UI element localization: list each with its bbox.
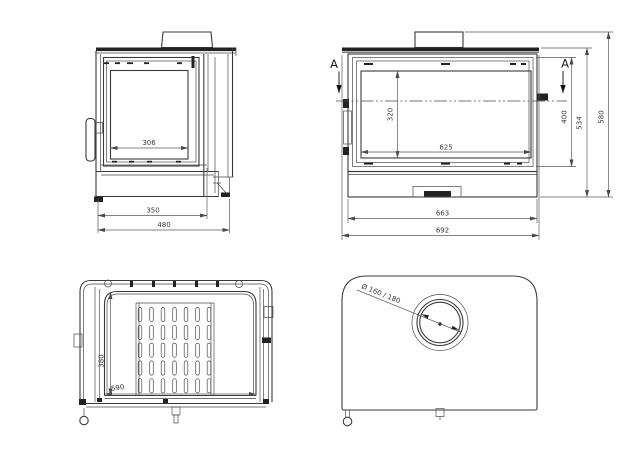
flue-diameter-dimension: Ø 160 / 180 (357, 282, 461, 332)
dim-front-glass-height: 320 (387, 108, 395, 121)
dim-front-overall-height: 580 (598, 110, 606, 123)
door-knob-section (80, 416, 88, 424)
section-view: 380 590 (74, 280, 273, 425)
section-dimensions: 380 590 (98, 292, 257, 396)
door-front-section (79, 398, 269, 425)
flue-opening (412, 295, 468, 351)
dim-side-overall-depth: 480 (157, 221, 170, 229)
rear-foot (221, 193, 230, 198)
grate (136, 303, 214, 396)
side-door-frame (104, 58, 200, 167)
dim-firebox-width: 590 (110, 383, 124, 393)
door-handle-side (86, 119, 103, 162)
door-hinge-left (343, 99, 352, 155)
firebox-wall (105, 292, 257, 396)
section-label-left: A (330, 57, 338, 71)
top-plate-side (96, 48, 236, 52)
left-latch (74, 334, 82, 347)
dim-front-body-height: 534 (576, 116, 584, 130)
dim-front-overall-width: 692 (436, 227, 449, 235)
handle-tab-section (172, 407, 180, 415)
technical-drawing-sheet: 306 350 480 (0, 0, 624, 460)
section-label-right: A (561, 57, 569, 71)
dim-front-glass-width: 625 (439, 144, 452, 152)
top-plate-front (342, 48, 539, 52)
grate-slots (138, 308, 211, 393)
door-knob-top (343, 410, 352, 426)
top-view: Ø 160 / 180 (342, 276, 537, 426)
front-view: A A 320 625 663 692 400 (330, 32, 613, 240)
section-marker-a-right: A (561, 57, 569, 94)
dim-front-door-height: 400 (561, 110, 569, 123)
front-foot (94, 197, 103, 203)
front-body (348, 54, 537, 172)
drawing-canvas: 306 350 480 (0, 0, 624, 460)
front-dimensions: 320 625 663 692 400 534 580 (342, 32, 613, 240)
dim-side-body-depth: 350 (146, 207, 159, 215)
side-dimensions: 306 350 480 (98, 139, 230, 233)
side-view: 306 350 480 (86, 32, 236, 233)
dim-firebox-depth: 380 (98, 354, 106, 367)
flue-collar-front (415, 32, 463, 48)
dim-side-glass-width: 306 (142, 139, 156, 147)
flue-collar-side (162, 32, 213, 48)
ash-drawer-handle (424, 191, 451, 197)
dim-front-body-width: 663 (436, 210, 449, 218)
section-marker-a-left: A (330, 57, 339, 93)
